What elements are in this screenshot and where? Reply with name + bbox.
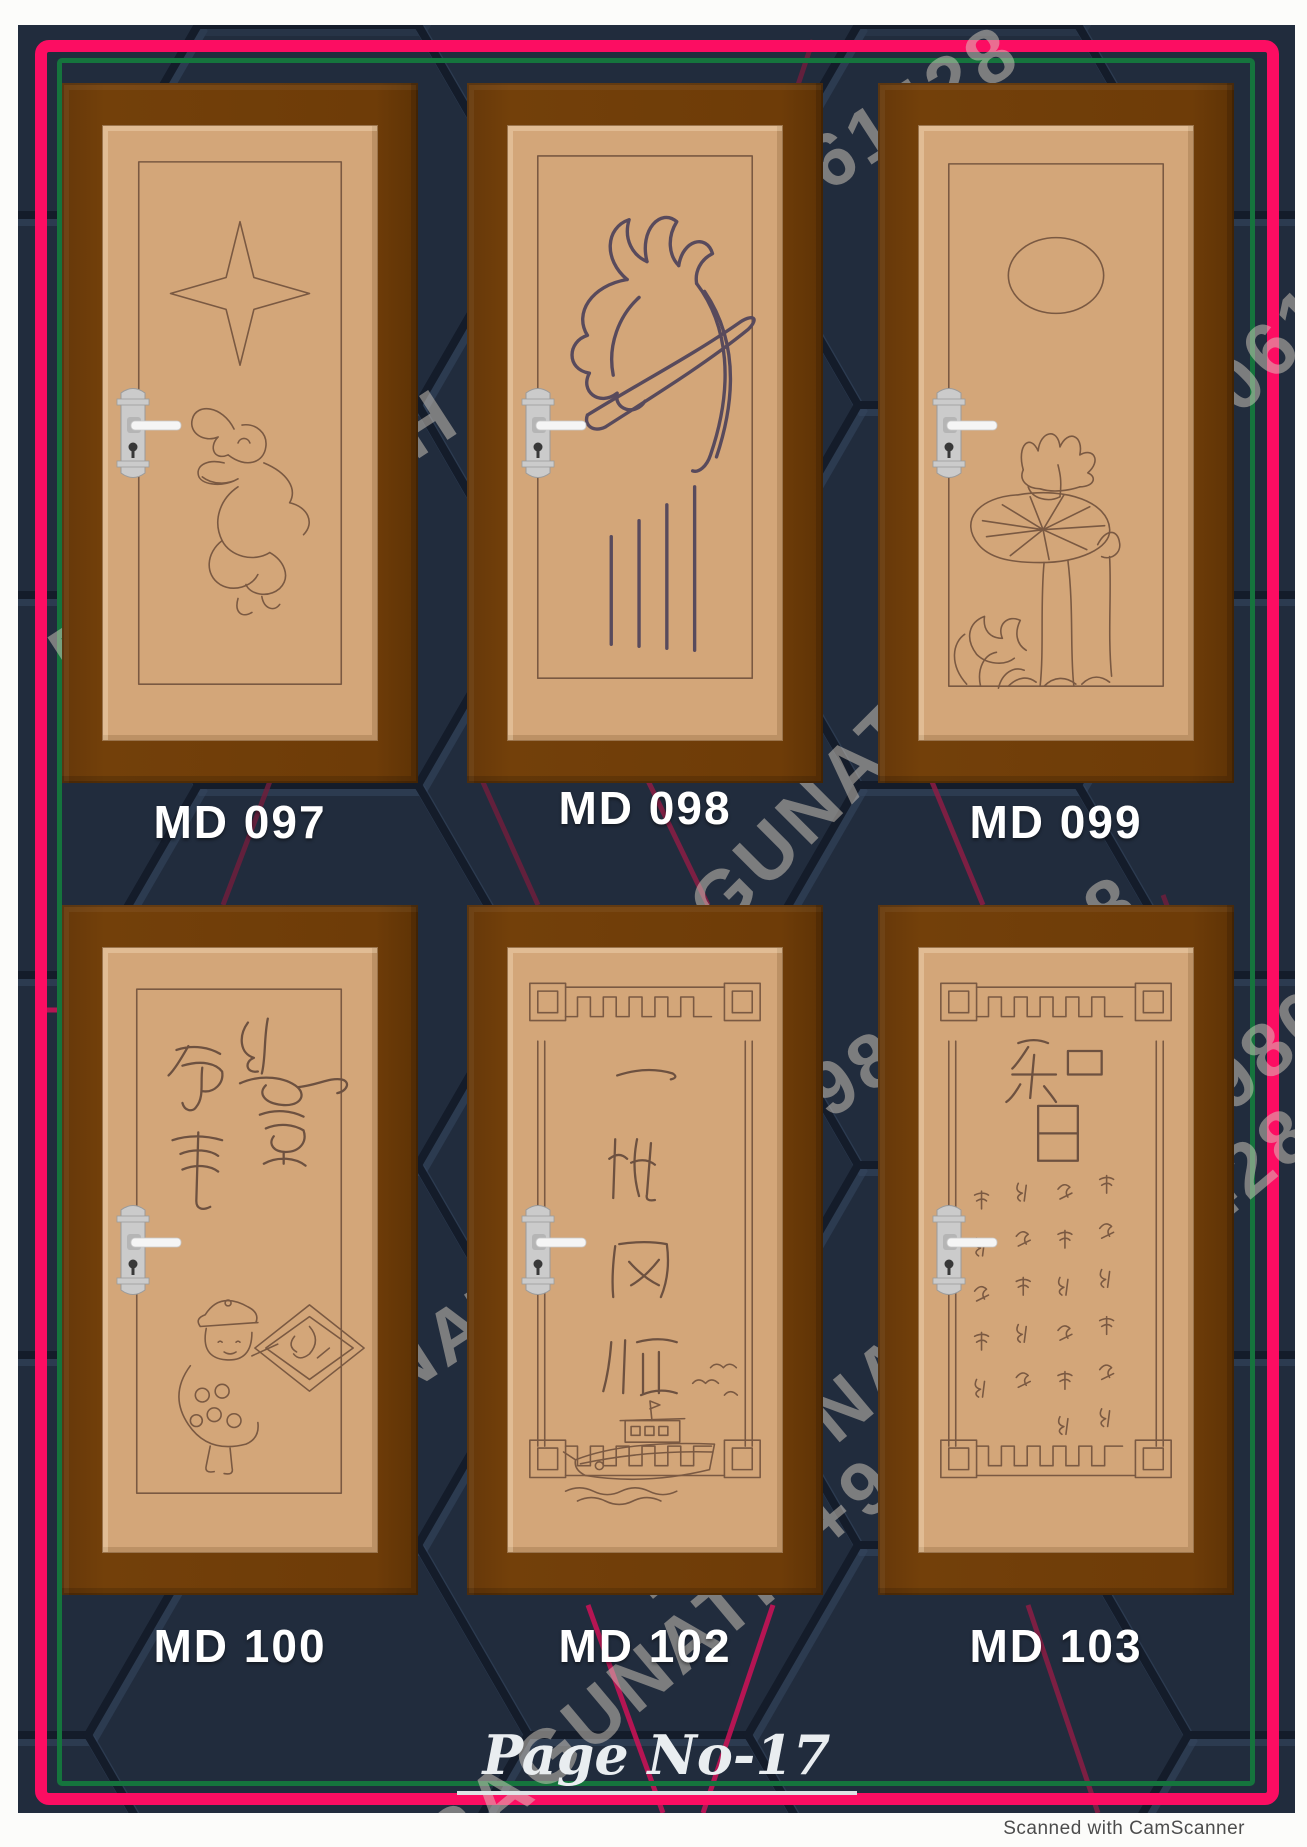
door-label-md-099: MD 099 xyxy=(878,795,1234,849)
door-label-md-103: MD 103 xyxy=(878,1619,1234,1673)
door-label-md-102: MD 102 xyxy=(467,1619,823,1673)
door-handle xyxy=(107,383,187,483)
door-card-md-097 xyxy=(62,83,418,783)
page-number: Page No-17 xyxy=(18,1723,1295,1795)
door-panel xyxy=(102,947,378,1553)
door-label-md-097: MD 097 xyxy=(62,795,418,849)
door-handle xyxy=(512,1200,592,1300)
door-card-md-098 xyxy=(467,83,823,783)
board-background: RAGUNATH +91 8098061428 RAGUNATH +91 809… xyxy=(18,25,1295,1813)
door-card-md-102 xyxy=(467,905,823,1595)
door-card-md-103 xyxy=(878,905,1234,1595)
door-label-md-098: MD 098 xyxy=(467,781,823,835)
door-card-md-100 xyxy=(62,905,418,1595)
camscanner-note: Scanned with CamScanner xyxy=(1003,1818,1245,1840)
door-label-md-100: MD 100 xyxy=(62,1619,418,1673)
door-panel xyxy=(507,125,783,741)
door-card-md-099 xyxy=(878,83,1234,783)
door-panel xyxy=(918,125,1194,741)
door-panel xyxy=(507,947,783,1553)
door-handle xyxy=(923,383,1003,483)
door-panel xyxy=(102,125,378,741)
page-number-text: Page No-17 xyxy=(457,1723,857,1795)
door-handle xyxy=(512,383,592,483)
door-handle xyxy=(923,1200,1003,1300)
door-handle xyxy=(107,1200,187,1300)
door-panel xyxy=(918,947,1194,1553)
catalog-page: RAGUNATH +91 8098061428 RAGUNATH +91 809… xyxy=(0,0,1307,1847)
